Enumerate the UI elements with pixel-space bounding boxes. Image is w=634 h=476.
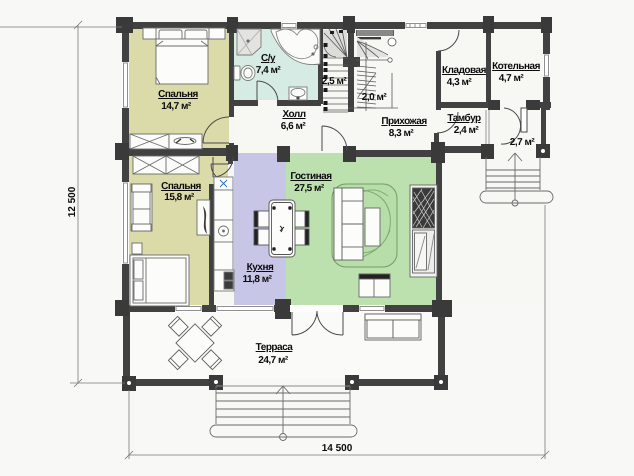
svg-text:Спальня: Спальня	[161, 181, 201, 192]
svg-text:14,7 м²: 14,7 м²	[161, 101, 192, 112]
svg-text:Кухня: Кухня	[247, 262, 274, 273]
svg-text:2,4 м²: 2,4 м²	[454, 125, 480, 136]
svg-text:11,8 м²: 11,8 м²	[243, 274, 273, 285]
svg-text:С/у: С/у	[261, 53, 276, 64]
svg-text:14 500: 14 500	[322, 443, 353, 454]
svg-text:4,3 м²: 4,3 м²	[447, 77, 473, 88]
svg-text:Кладовая: Кладовая	[442, 65, 487, 76]
svg-text:Котельная: Котельная	[492, 61, 541, 72]
svg-text:Гостиная: Гостиная	[290, 171, 332, 182]
svg-text:Спальня: Спальня	[158, 89, 198, 100]
svg-text:Прихожая: Прихожая	[381, 116, 427, 127]
svg-text:24,7 м²: 24,7 м²	[258, 355, 289, 366]
svg-text:2,0 м²: 2,0 м²	[362, 92, 388, 103]
svg-text:2,7 м²: 2,7 м²	[510, 137, 536, 148]
svg-text:Терраса: Терраса	[256, 342, 294, 353]
svg-text:6,6 м²: 6,6 м²	[281, 121, 307, 132]
svg-text:4,7 м²: 4,7 м²	[499, 73, 525, 84]
svg-text:12 500: 12 500	[67, 186, 78, 217]
svg-text:7,4 м²: 7,4 м²	[256, 65, 282, 76]
svg-text:15,8 м²: 15,8 м²	[164, 192, 195, 203]
svg-text:Холл: Холл	[282, 109, 305, 120]
svg-text:2,5 м²: 2,5 м²	[322, 76, 348, 87]
svg-text:Тамбур: Тамбур	[447, 113, 481, 124]
svg-text:8,3 м²: 8,3 м²	[389, 128, 415, 139]
svg-text:27,5 м²: 27,5 м²	[294, 183, 325, 194]
